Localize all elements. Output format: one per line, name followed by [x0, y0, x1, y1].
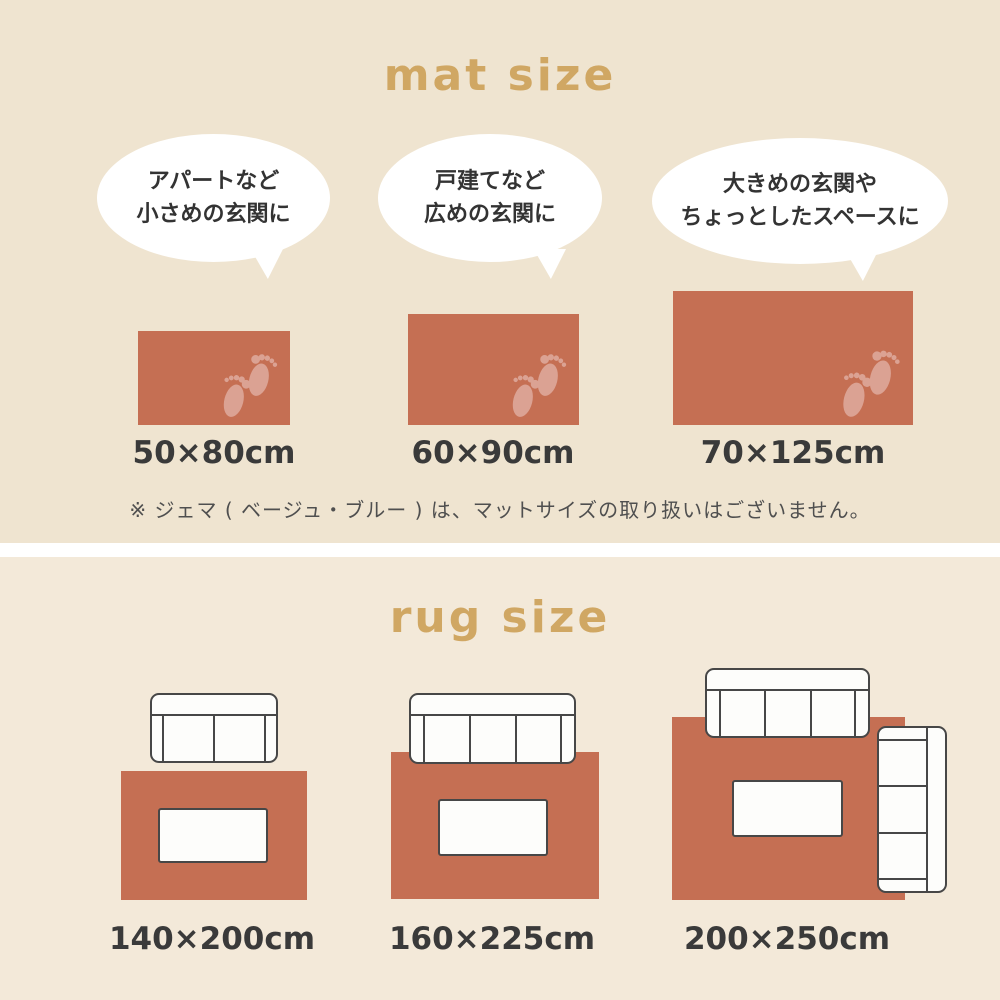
- sofa-3seat-icon: [409, 693, 576, 764]
- mat-size-label-3: 70×125cm: [701, 435, 886, 471]
- footprints-icon: [508, 347, 570, 419]
- rug-size-label-2: 160×225cm: [389, 921, 595, 957]
- mat-60x90: [408, 314, 579, 425]
- low-table-icon: [438, 799, 548, 856]
- rug-section-title: rug size: [0, 592, 1000, 643]
- speech-bubble-wide-entrance: 戸建てなど広めの玄関に: [378, 134, 602, 262]
- sofa-2seat-icon: [150, 693, 278, 763]
- low-table-icon: [158, 808, 268, 863]
- sofa-3seat-side-icon: [877, 726, 947, 893]
- mat-size-label-2: 60×90cm: [412, 435, 575, 471]
- mat-rug-size-infographic: mat size アパートなど小さめの玄関に 戸建てなど広めの玄関に 大きめの玄…: [0, 0, 1000, 1000]
- rug-size-label-3: 200×250cm: [684, 921, 890, 957]
- low-table-icon: [732, 780, 843, 837]
- bubble-text: 戸建てなど広めの玄関に: [424, 165, 556, 231]
- speech-bubble-large-entrance: 大きめの玄関やちょっとしたスペースに: [652, 138, 948, 264]
- speech-bubble-small-entrance: アパートなど小さめの玄関に: [97, 134, 330, 262]
- footprints-icon: [838, 343, 904, 419]
- mat-70x125: [673, 291, 913, 425]
- mat-50x80: [138, 331, 290, 425]
- rug-size-label-1: 140×200cm: [109, 921, 315, 957]
- bubble-text: 大きめの玄関やちょっとしたスペースに: [680, 168, 919, 234]
- sofa-3seat-icon: [705, 668, 870, 738]
- footprints-icon: [219, 347, 281, 419]
- mat-size-label-1: 50×80cm: [133, 435, 296, 471]
- bubble-text: アパートなど小さめの玄関に: [136, 165, 290, 231]
- mat-availability-note: ※ ジェマ ( ベージュ・ブルー ) は、マットサイズの取り扱いはございません。: [0, 494, 1000, 523]
- mat-section-title: mat size: [0, 50, 1000, 101]
